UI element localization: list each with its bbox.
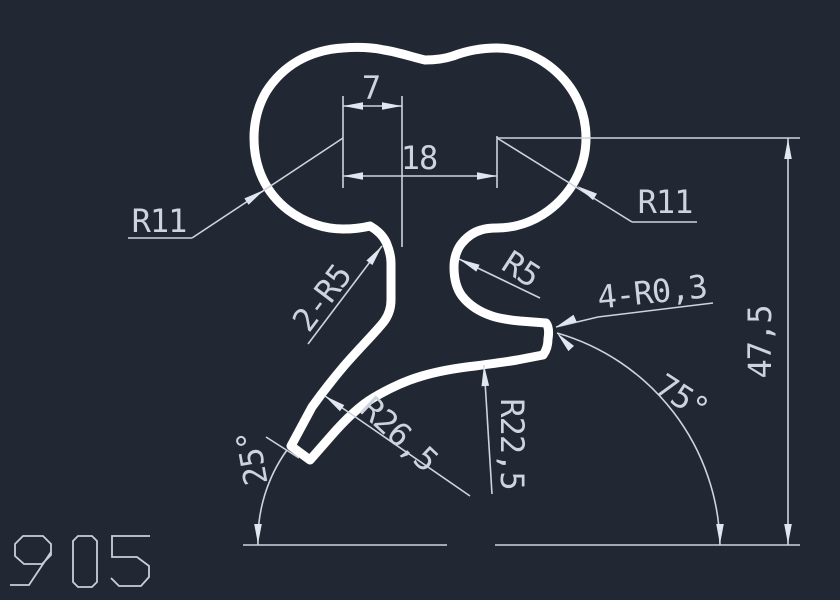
- arrow-r26-5: [325, 396, 344, 411]
- dim-label-r11-right: R11: [638, 186, 693, 218]
- angle-arc-75: [557, 333, 720, 545]
- arrow-47-5-top: [784, 139, 792, 159]
- dim-label-18: 18: [401, 142, 438, 174]
- digit-5: [111, 536, 150, 586]
- arrow-r11-right: [577, 186, 597, 200]
- arrow-dim7-left: [343, 102, 363, 110]
- arrow-dim18-left: [343, 172, 363, 180]
- arrow-25-bottom: [254, 524, 262, 544]
- profile-outline: [254, 47, 586, 460]
- dim-label-7: 7: [362, 72, 380, 104]
- part-number-figure: [10, 536, 150, 587]
- leader-r11-right: [497, 138, 632, 222]
- dim-label-25deg: 25°: [231, 428, 272, 488]
- arrow-dim18-right: [477, 172, 497, 180]
- arrow-r5: [459, 259, 480, 272]
- dim-label-47-5: 47,5: [744, 305, 776, 378]
- cad-canvas: R11 R11 7 18 2-R5 R5 4-R0,3 47,5 R26,5 R…: [0, 0, 840, 600]
- drawing-linework: [0, 0, 840, 600]
- arrow-dim7-right: [382, 102, 402, 110]
- arrow-47-5-bottom: [784, 524, 792, 544]
- arrow-75-bottom: [716, 524, 724, 544]
- arrow-r11-left: [244, 190, 264, 205]
- digit-0: [73, 536, 97, 587]
- dim-label-r22-5: R22,5: [496, 398, 528, 489]
- arrow-2-r5: [366, 246, 382, 265]
- dim-label-r11-left: R11: [132, 205, 187, 237]
- dimension-lines: [128, 96, 800, 545]
